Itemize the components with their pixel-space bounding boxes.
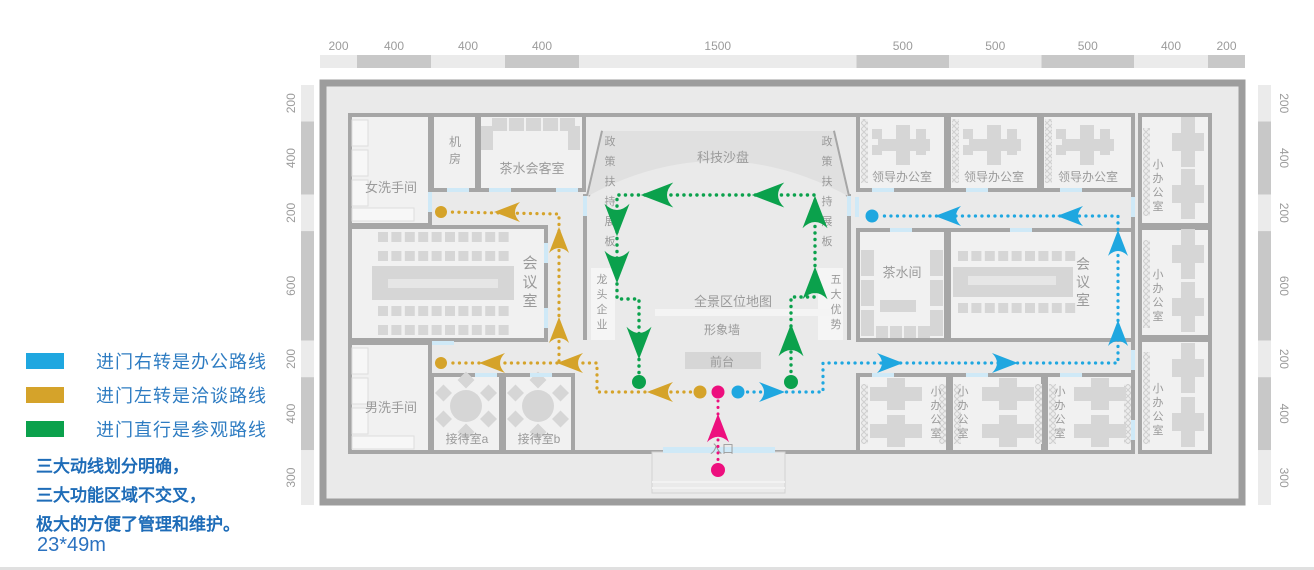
chair <box>971 251 981 261</box>
desk <box>1091 415 1109 447</box>
fixture <box>352 120 368 146</box>
door <box>1060 188 1082 192</box>
window-hatch <box>861 384 868 444</box>
door <box>872 188 894 192</box>
door <box>583 196 587 216</box>
chair <box>405 251 415 261</box>
ruler-side-label: 600 <box>1277 276 1291 296</box>
floor-plan-slide: 2004004004001500500500500400200200400200… <box>0 0 1314 570</box>
note-line: 三大功能区域不交叉， <box>36 481 240 510</box>
chair <box>378 325 388 335</box>
door <box>966 188 988 192</box>
ruler-side-label: 300 <box>284 467 298 487</box>
ruler-top-label: 500 <box>893 39 913 53</box>
sofa <box>509 118 524 131</box>
ruler-side-segment <box>301 231 314 341</box>
sofa <box>492 118 507 131</box>
chair <box>958 251 968 261</box>
ruler-side-label: 400 <box>1277 404 1291 424</box>
ruler-side-segment <box>1258 341 1271 378</box>
ruler-top-segment <box>320 55 357 68</box>
door <box>872 373 894 377</box>
ruler-top-label: 400 <box>532 39 552 53</box>
notes-block: 三大动线划分明确， 三大功能区域不交叉， 极大的方便了管理和维护。 <box>36 452 240 539</box>
chair <box>1038 251 1048 261</box>
sofa <box>930 250 943 276</box>
chair <box>916 145 926 155</box>
ruler-top-label: 200 <box>328 39 348 53</box>
chair <box>445 306 455 316</box>
ruler-top-segment <box>1042 55 1135 68</box>
room-small-office-6 <box>1140 340 1210 452</box>
chair <box>1056 129 1066 139</box>
desk <box>1172 185 1204 203</box>
chair <box>872 145 882 155</box>
ruler-side-label: 200 <box>284 93 298 113</box>
desk <box>1091 378 1109 410</box>
ruler-top-label: 500 <box>985 39 1005 53</box>
ruler-top-segment <box>1134 55 1208 68</box>
desk <box>1172 298 1204 316</box>
fixture <box>352 150 368 176</box>
chair <box>391 325 401 335</box>
ruler-side-segment <box>1258 122 1271 195</box>
chair <box>958 303 968 313</box>
ruler-top-segment <box>949 55 1042 68</box>
ruler-side-segment <box>1258 450 1271 505</box>
ruler-top-segment <box>505 55 579 68</box>
chair <box>963 129 973 139</box>
chair <box>405 306 415 316</box>
route-dot-talk-route <box>694 386 707 399</box>
chair <box>472 306 482 316</box>
chair <box>1065 303 1075 313</box>
route-dot-office-route <box>732 386 745 399</box>
chair <box>1065 251 1075 261</box>
chair <box>418 306 428 316</box>
ruler-top-segment <box>431 55 505 68</box>
chair <box>985 251 995 261</box>
label-front-desk: 前台 <box>710 354 734 369</box>
label-reception-b: 接待室b <box>518 431 561 446</box>
ruler-side-segment <box>1258 377 1271 450</box>
chair <box>963 145 973 155</box>
fixture <box>352 208 414 221</box>
label-image-wall: 形象墙 <box>704 323 740 337</box>
label-tea-room: 茶水间 <box>882 265 921 280</box>
chair <box>458 306 468 316</box>
label-tea-guest-room: 茶水会客室 <box>499 161 564 176</box>
chair <box>418 232 428 242</box>
route-dot-talk-route <box>435 357 447 369</box>
legend-item-visit-route: 进门直行是参观路线 <box>26 420 267 438</box>
chair <box>1025 251 1035 261</box>
label-reception-a: 接待室a <box>446 431 489 446</box>
legend-label: 进门左转是洽谈路线 <box>96 382 267 408</box>
window-hatch <box>1045 119 1052 183</box>
talk-route-swatch <box>26 387 64 403</box>
chair <box>499 251 509 261</box>
chair <box>458 325 468 335</box>
chair <box>432 325 442 335</box>
ruler-side-label: 200 <box>1277 93 1291 113</box>
chair <box>391 232 401 242</box>
chair <box>378 251 388 261</box>
chair <box>458 232 468 242</box>
chair <box>1007 145 1017 155</box>
door <box>1131 197 1135 217</box>
chair <box>445 232 455 242</box>
chair <box>472 325 482 335</box>
ruler-side-segment <box>1258 85 1271 122</box>
ruler-side-segment <box>1258 231 1271 341</box>
route-dot-talk-route <box>435 206 447 218</box>
desk <box>896 125 910 165</box>
sofa <box>526 118 541 131</box>
chair <box>1052 303 1062 313</box>
round-table <box>450 390 482 422</box>
route-dot-entry-route <box>712 386 725 399</box>
sofa <box>930 310 943 336</box>
legend-item-office-route: 进门右转是办公路线 <box>26 352 267 370</box>
chair <box>378 306 388 316</box>
desk <box>1172 359 1204 377</box>
chair <box>485 325 495 335</box>
ruler-side-label: 200 <box>1277 203 1291 223</box>
desk <box>887 378 905 410</box>
ruler-side-label: 600 <box>284 276 298 296</box>
ruler-side-label: 300 <box>1277 468 1291 488</box>
door <box>428 192 432 212</box>
chair <box>904 326 916 338</box>
chair <box>499 232 509 242</box>
label-leader-office-2: 领导办公室 <box>964 169 1024 184</box>
ruler-side-label: 200 <box>284 202 298 222</box>
window-hatch <box>1143 352 1150 444</box>
window-hatch <box>861 119 868 183</box>
chair <box>890 326 902 338</box>
chair <box>485 251 495 261</box>
chair <box>378 232 388 242</box>
sofa <box>861 280 874 306</box>
chair <box>1038 303 1048 313</box>
door <box>1060 373 1082 377</box>
door <box>855 197 859 217</box>
door <box>556 188 578 192</box>
chair <box>1025 303 1035 313</box>
ruler-side-segment <box>301 85 314 122</box>
ruler-top-label: 400 <box>458 39 478 53</box>
legend-label: 进门直行是参观路线 <box>96 416 267 442</box>
door <box>1010 228 1032 232</box>
fixture <box>352 436 414 449</box>
ruler-top-segment <box>1208 55 1245 68</box>
desk <box>1172 133 1204 151</box>
label-entrance: 入口 <box>710 442 734 456</box>
sofa <box>543 118 558 131</box>
chair <box>418 251 428 261</box>
chair <box>1012 303 1022 313</box>
chair <box>391 306 401 316</box>
door <box>475 373 497 377</box>
room-small-office-5 <box>1140 228 1210 337</box>
chair <box>418 325 428 335</box>
chair <box>1052 251 1062 261</box>
window-hatch <box>1035 384 1042 444</box>
chair <box>872 129 882 139</box>
door <box>1131 420 1135 440</box>
sofa <box>880 300 916 312</box>
route-legend: 进门右转是办公路线 进门左转是洽谈路线 进门直行是参观路线 <box>26 352 267 454</box>
ruler-side-label: 200 <box>284 349 298 369</box>
sofa <box>861 250 874 276</box>
route-dot-visit-route <box>784 375 798 389</box>
chair <box>405 325 415 335</box>
door <box>489 188 511 192</box>
chair <box>499 306 509 316</box>
label-tech-sandbox: 科技沙盘 <box>697 150 749 165</box>
sofa <box>861 310 874 336</box>
label-women-restroom: 女洗手间 <box>365 180 417 195</box>
round-table <box>522 390 554 422</box>
route-dot-office-route <box>866 210 879 223</box>
chair <box>472 232 482 242</box>
desk <box>1172 413 1204 431</box>
desk <box>999 378 1017 410</box>
desk <box>999 415 1017 447</box>
ruler-top-label: 400 <box>1161 39 1181 53</box>
label-meeting-room-left: 会议室 <box>522 255 537 310</box>
ruler-side-label: 400 <box>284 403 298 423</box>
chair <box>432 306 442 316</box>
chair <box>1012 251 1022 261</box>
ruler-top-label: 200 <box>1216 39 1236 53</box>
room-small-office-4 <box>1140 115 1210 225</box>
ruler-side-segment <box>1258 195 1271 232</box>
ruler-side-segment <box>301 195 314 232</box>
window-hatch <box>1143 128 1150 216</box>
door <box>544 243 548 263</box>
chair <box>1100 145 1110 155</box>
chair <box>1100 129 1110 139</box>
chair <box>432 251 442 261</box>
sofa <box>930 280 943 306</box>
chair <box>499 325 509 335</box>
chair <box>445 251 455 261</box>
ruler-side-segment <box>301 450 314 505</box>
chair <box>405 232 415 242</box>
door <box>847 196 851 216</box>
ruler-top-label: 400 <box>384 39 404 53</box>
ruler-side-label: 200 <box>1277 349 1291 369</box>
door <box>890 228 912 232</box>
ruler-side-label: 400 <box>1277 148 1291 168</box>
ruler-side-segment <box>301 341 314 378</box>
legend-item-talk-route: 进门左转是洽谈路线 <box>26 386 267 404</box>
chair <box>876 326 888 338</box>
table-stripe <box>388 279 498 288</box>
chair <box>485 232 495 242</box>
chair <box>985 303 995 313</box>
chair <box>445 325 455 335</box>
door <box>530 373 552 377</box>
chair <box>458 251 468 261</box>
route-dot-entry-route <box>711 463 725 477</box>
ruler-top-label: 1500 <box>704 39 731 53</box>
fixture <box>352 348 368 374</box>
label-leader-office-1: 领导办公室 <box>872 169 932 184</box>
door <box>432 341 454 345</box>
door <box>1131 350 1135 370</box>
window-hatch <box>952 119 959 183</box>
door <box>966 373 988 377</box>
door <box>544 308 548 328</box>
table-stripe <box>968 276 1056 285</box>
desk <box>1080 125 1094 165</box>
ruler-side-label: 400 <box>284 148 298 168</box>
label-leader-office-3: 领导办公室 <box>1058 169 1118 184</box>
ruler-side-segment <box>301 122 314 195</box>
label-men-restroom: 男洗手间 <box>365 400 417 415</box>
window-hatch <box>1143 240 1150 328</box>
label-meeting-room-right: 会议室 <box>1076 256 1090 308</box>
visit-route-swatch <box>26 421 64 437</box>
chair <box>472 251 482 261</box>
ruler-top-segment <box>357 55 431 68</box>
image-wall-slab <box>655 309 833 316</box>
route-dot-visit-route <box>632 375 646 389</box>
chair <box>916 129 926 139</box>
desk <box>887 415 905 447</box>
ruler-top-segment <box>857 55 950 68</box>
office-route-swatch <box>26 353 64 369</box>
chair <box>918 326 930 338</box>
sofa <box>568 126 580 150</box>
note-line: 三大动线划分明确， <box>36 452 240 481</box>
chair <box>1007 129 1017 139</box>
chair <box>485 306 495 316</box>
sofa <box>481 126 493 150</box>
desk <box>1172 245 1204 263</box>
chair <box>1056 145 1066 155</box>
chair <box>998 251 1008 261</box>
chair <box>971 303 981 313</box>
desk <box>987 125 1001 165</box>
chair <box>391 251 401 261</box>
ruler-side-segment <box>301 377 314 450</box>
chair <box>432 232 442 242</box>
label-panorama-map: 全景区位地图 <box>694 294 772 309</box>
ruler-top-segment <box>579 55 857 68</box>
door <box>447 188 469 192</box>
ruler-top-label: 500 <box>1078 39 1098 53</box>
chair <box>998 303 1008 313</box>
legend-label: 进门右转是办公路线 <box>96 348 267 374</box>
plan-dimensions-label: 23*49m <box>37 534 106 557</box>
